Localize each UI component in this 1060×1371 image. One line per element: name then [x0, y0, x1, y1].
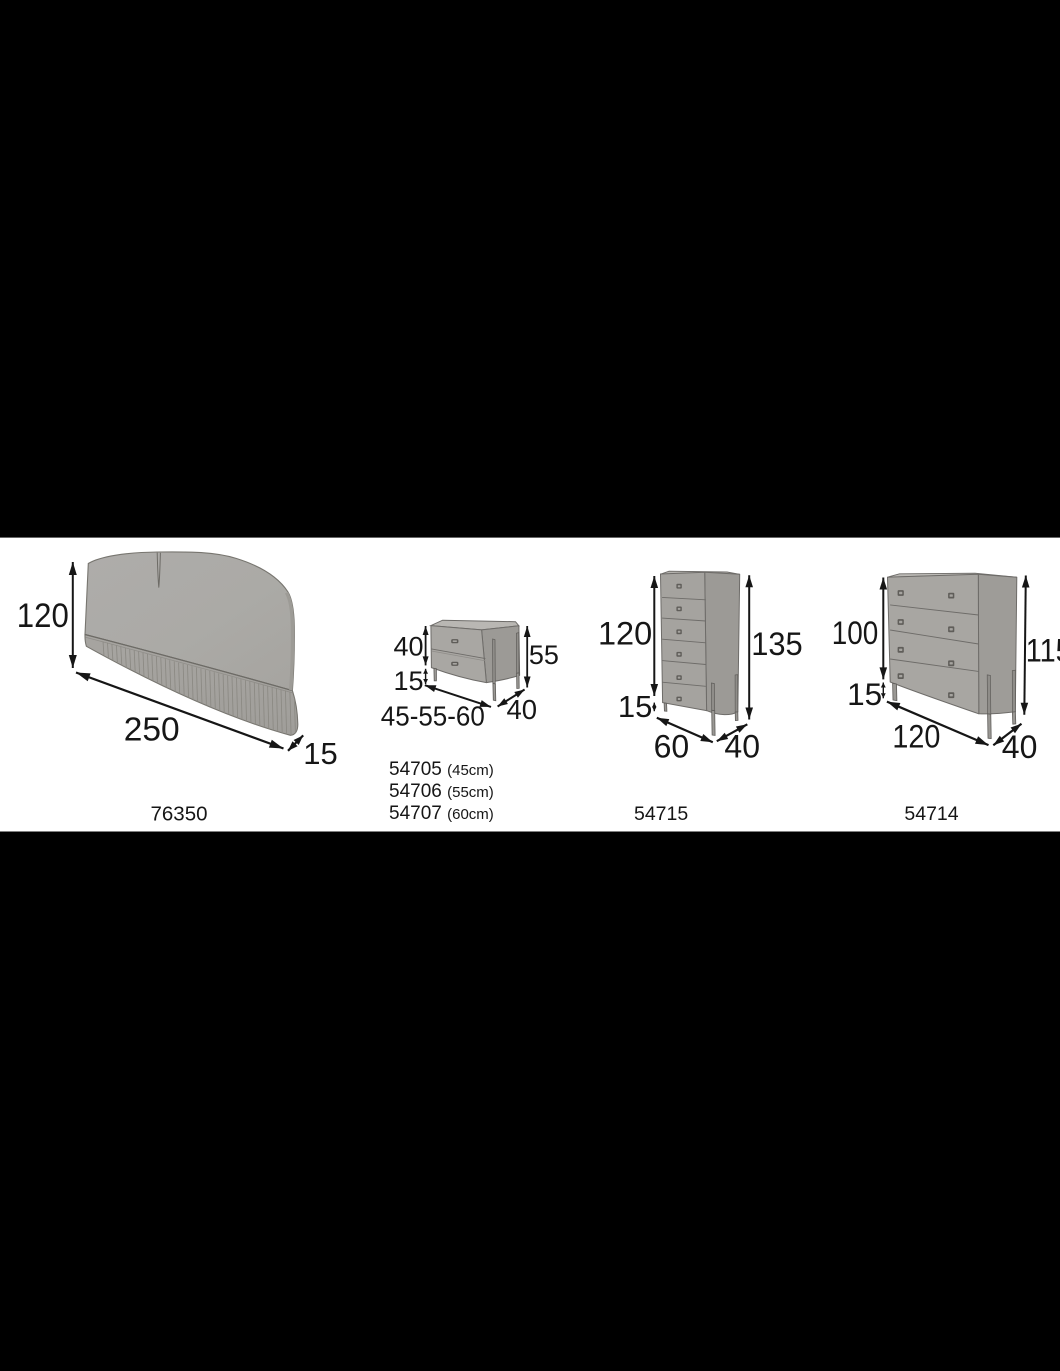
svg-text:60: 60	[654, 728, 690, 764]
svg-text:100: 100	[832, 615, 879, 651]
svg-text:40: 40	[724, 728, 760, 764]
svg-text:54705 (45cm): 54705 (45cm)	[389, 759, 494, 780]
svg-text:135: 135	[751, 626, 803, 662]
svg-text:40: 40	[393, 631, 423, 661]
svg-text:15: 15	[303, 736, 337, 771]
svg-text:76350: 76350	[150, 802, 207, 825]
svg-text:120: 120	[892, 719, 940, 755]
svg-text:120: 120	[598, 616, 652, 652]
svg-text:40: 40	[1002, 729, 1038, 765]
svg-text:15: 15	[393, 666, 423, 696]
svg-text:15: 15	[847, 676, 882, 712]
svg-text:45-55-60: 45-55-60	[381, 700, 485, 731]
svg-text:54707 (60cm): 54707 (60cm)	[389, 803, 494, 824]
svg-text:15: 15	[618, 689, 652, 724]
svg-text:54706 (55cm): 54706 (55cm)	[389, 781, 494, 802]
svg-text:40: 40	[507, 694, 538, 725]
svg-text:250: 250	[124, 711, 180, 748]
svg-text:115: 115	[1026, 632, 1060, 668]
svg-text:55: 55	[529, 640, 559, 670]
svg-text:54714: 54714	[904, 803, 958, 825]
svg-text:120: 120	[17, 597, 69, 635]
svg-text:54715: 54715	[634, 803, 688, 825]
